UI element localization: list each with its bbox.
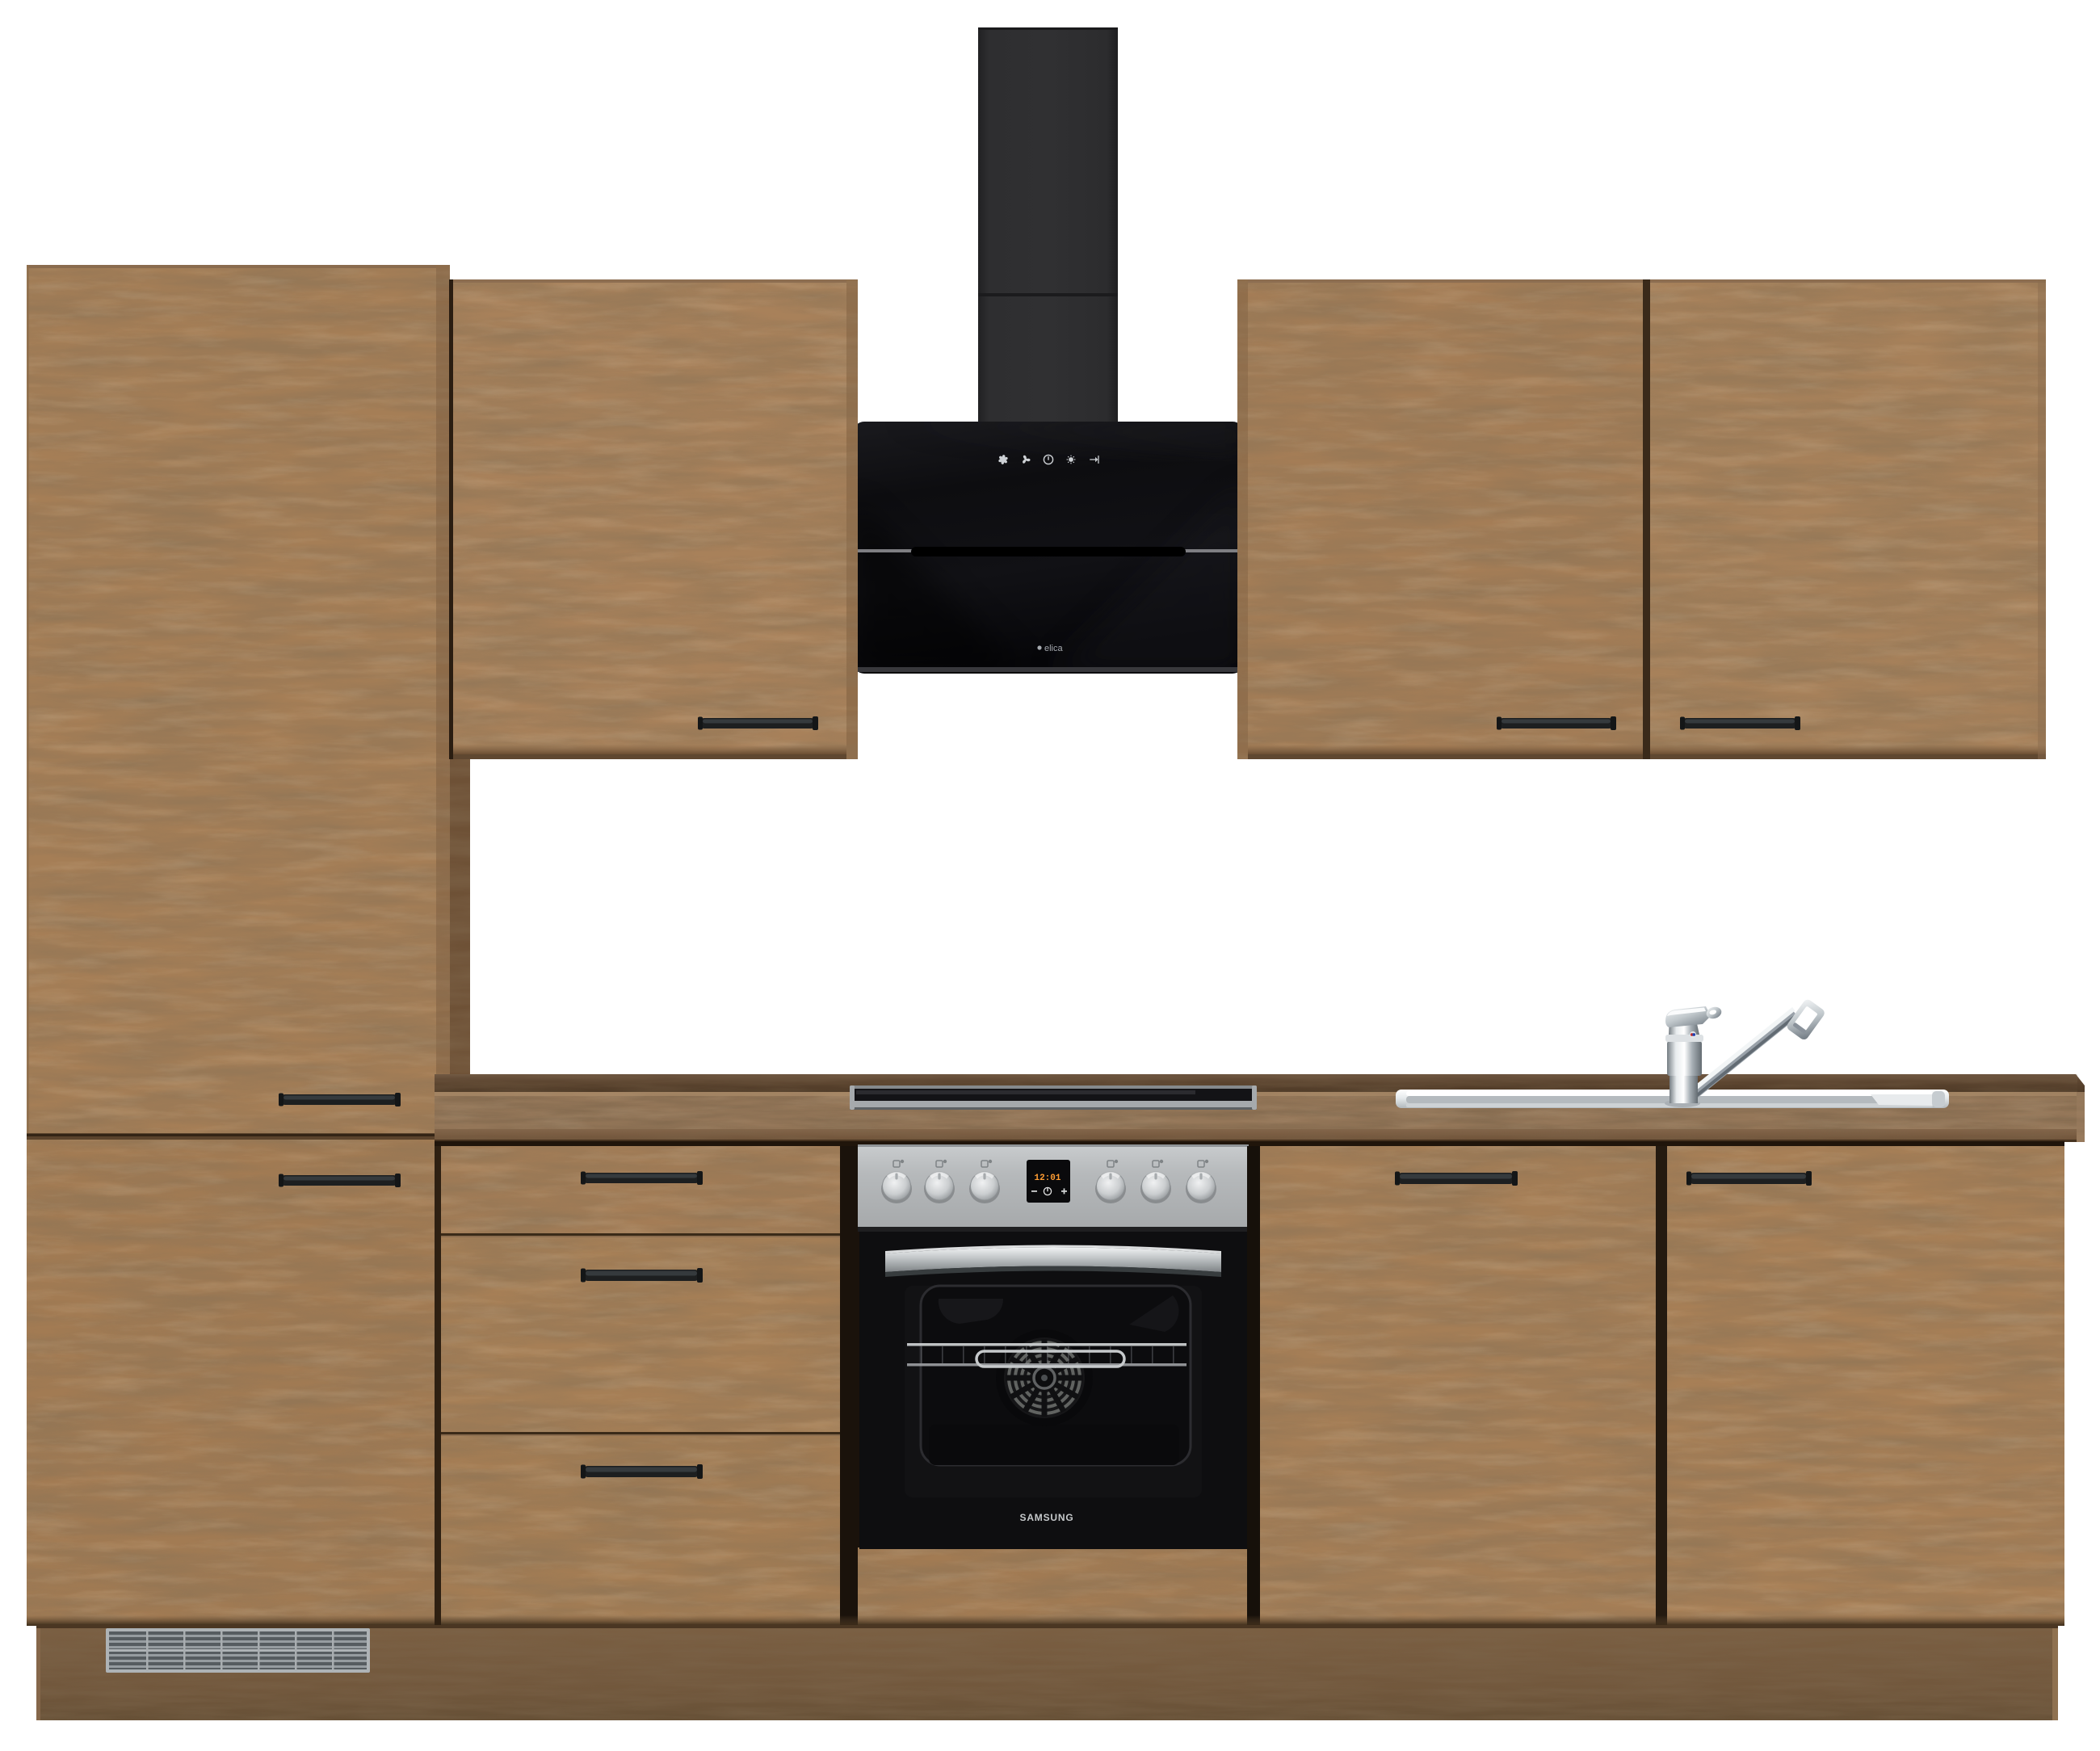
- svg-text:elica: elica: [1044, 644, 1064, 653]
- svg-text:12:01: 12:01: [1034, 1174, 1060, 1183]
- svg-text:SAMSUNG: SAMSUNG: [1020, 1512, 1074, 1523]
